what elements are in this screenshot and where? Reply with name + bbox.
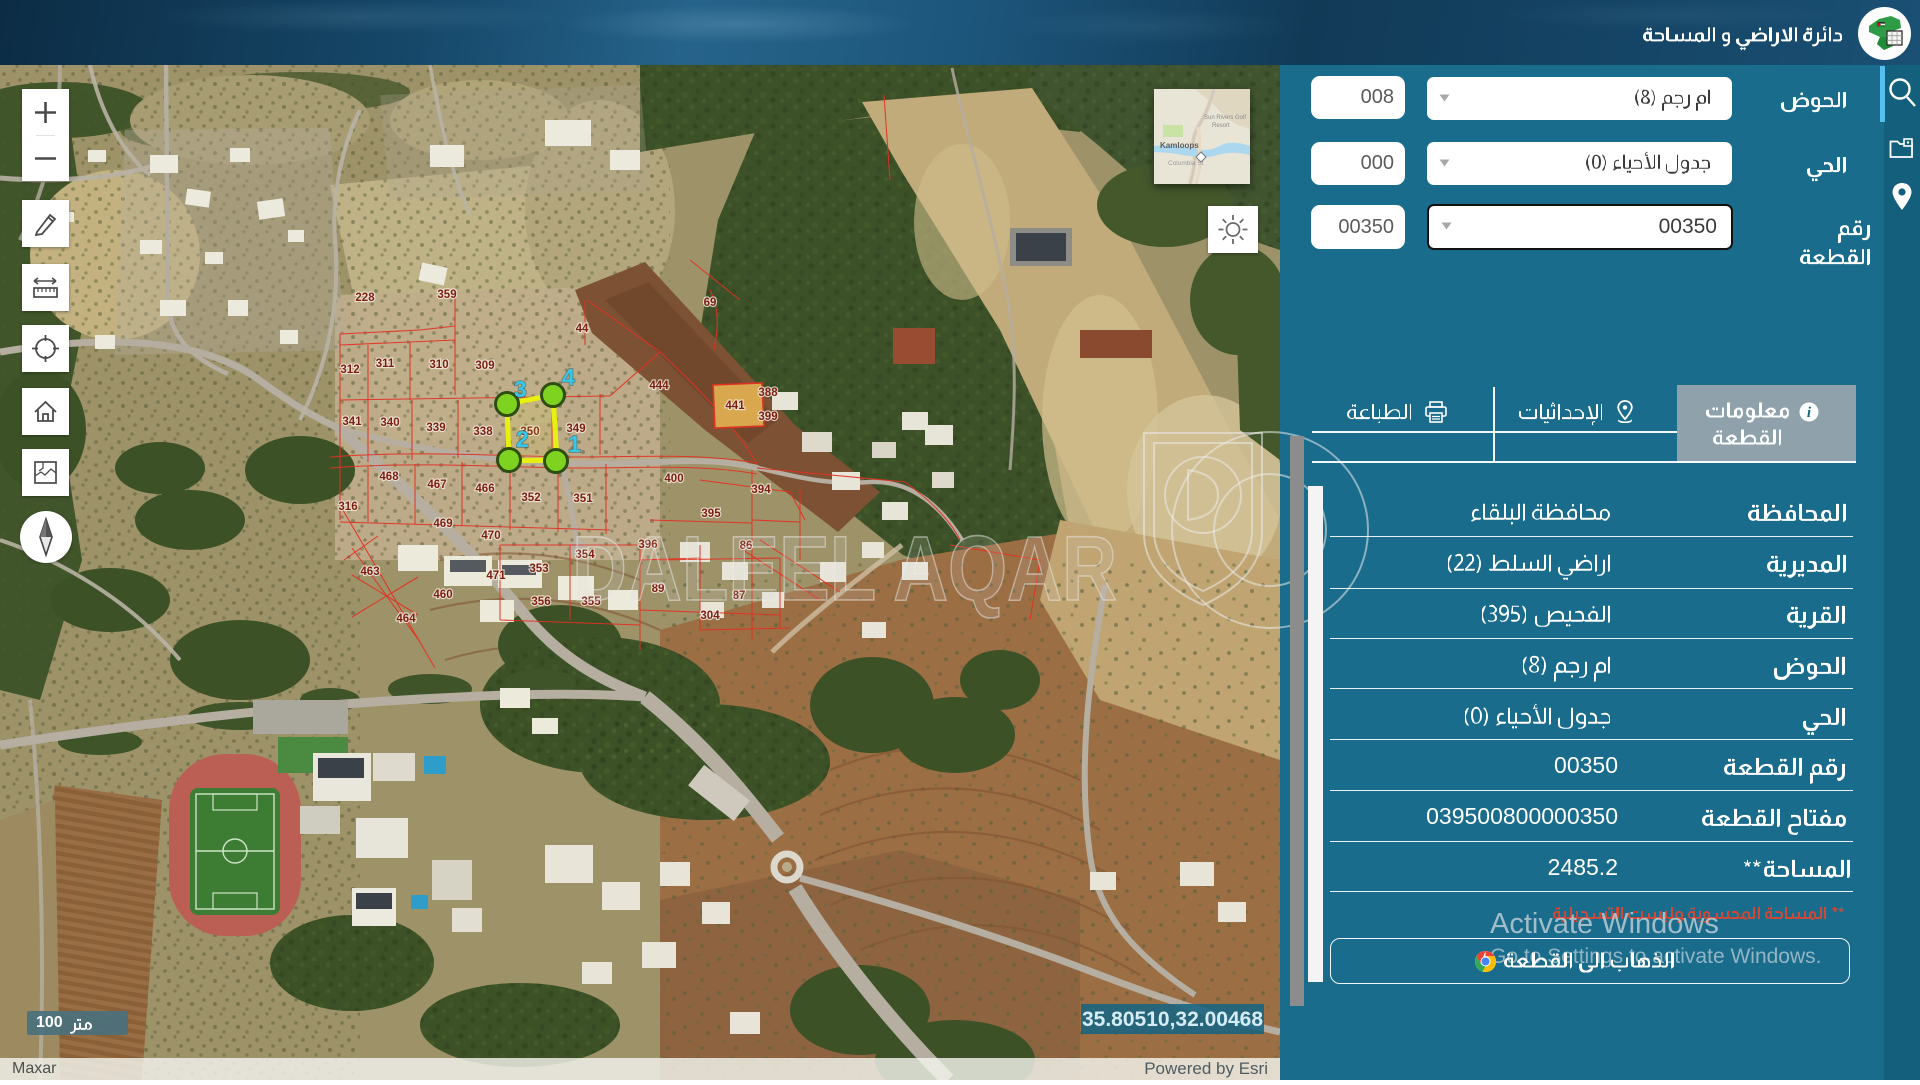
svg-text:311: 311 [376,358,395,370]
svg-text:Kamloops: Kamloops [1160,141,1199,150]
svg-text:4: 4 [562,364,575,390]
svg-text:Sun Rivers Golf: Sun Rivers Golf [1204,115,1246,121]
svg-text:341: 341 [342,416,362,428]
svg-text:469: 469 [433,518,452,530]
svg-text:394: 394 [751,484,771,496]
svg-text:304: 304 [700,610,720,622]
svg-text:1: 1 [568,431,581,457]
svg-text:Columbia St: Columbia St [1168,160,1204,167]
svg-text:353: 353 [529,563,548,575]
svg-text:339: 339 [426,422,445,434]
svg-text:69: 69 [704,297,717,309]
svg-text:3: 3 [514,376,527,402]
svg-text:400: 400 [664,473,683,485]
svg-text:Resort: Resort [1212,123,1230,129]
svg-text:355: 355 [581,596,601,608]
svg-text:44: 44 [576,323,589,335]
svg-text:467: 467 [427,479,446,491]
svg-text:312: 312 [340,364,359,376]
svg-text:356: 356 [531,596,550,608]
svg-text:316: 316 [338,501,357,513]
svg-text:310: 310 [429,359,448,371]
svg-text:464: 464 [396,613,416,625]
svg-text:340: 340 [380,417,399,429]
svg-text:466: 466 [475,483,494,495]
svg-text:395: 395 [701,508,721,520]
svg-text:89: 89 [652,583,665,595]
svg-text:2: 2 [516,426,529,452]
svg-text:87: 87 [733,590,746,602]
svg-text:309: 309 [475,360,494,372]
svg-text:460: 460 [433,589,452,601]
svg-text:399: 399 [758,411,777,423]
svg-text:444: 444 [649,380,669,392]
svg-text:359: 359 [437,289,456,301]
svg-text:354: 354 [575,549,595,561]
svg-text:352: 352 [521,492,540,504]
svg-text:470: 470 [481,530,500,542]
svg-text:441: 441 [725,400,745,412]
svg-text:463: 463 [360,566,379,578]
svg-text:471: 471 [486,570,506,582]
svg-text:396: 396 [638,539,657,551]
svg-text:338: 338 [473,426,493,438]
svg-text:86: 86 [740,540,753,552]
svg-text:388: 388 [758,387,778,399]
svg-text:228: 228 [355,292,375,304]
svg-text:468: 468 [379,471,399,483]
svg-text:351: 351 [573,493,593,505]
